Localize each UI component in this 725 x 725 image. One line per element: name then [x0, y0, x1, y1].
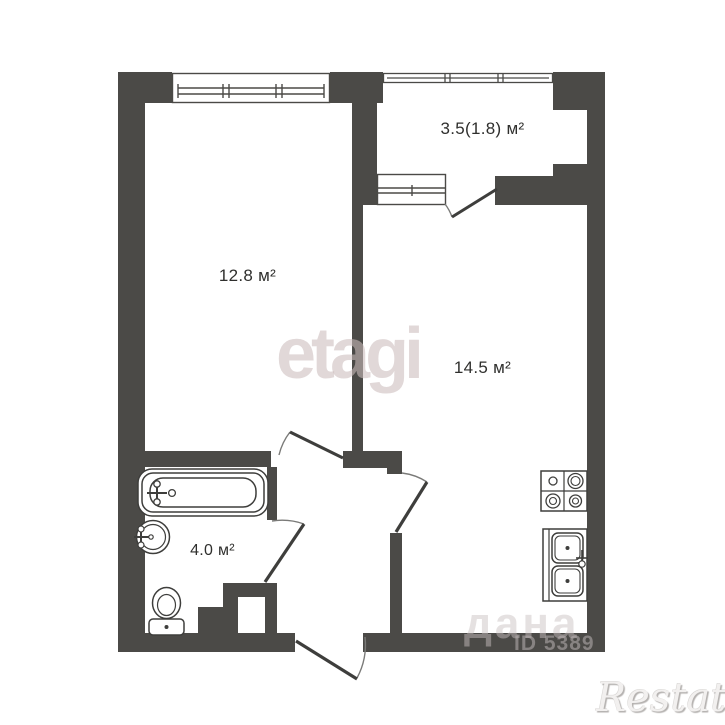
toilet-icon	[149, 588, 184, 636]
door-living	[279, 432, 343, 458]
watermark-etagi: etagi	[276, 318, 419, 390]
wall-stair-middle	[223, 597, 238, 638]
window-living-icon	[173, 74, 330, 103]
wall-balcony-step-upper	[553, 164, 587, 176]
wall-top-middle	[330, 72, 383, 103]
wall-top-left	[118, 72, 172, 103]
door-entrance	[296, 637, 365, 679]
floor-plan: 12.8 м² 3.5(1.8) м² 14.5 м² 4.0 м² etagi…	[0, 0, 725, 725]
restate-logo: Restate	[596, 678, 725, 718]
wall-hall-top-ext	[387, 451, 402, 474]
room-label-balcony: 3.5(1.8) м²	[415, 119, 550, 139]
wall-hall-kitchen	[390, 533, 402, 633]
wall-stair-right	[265, 597, 277, 638]
bathtub-icon	[138, 469, 268, 516]
door-bathroom	[265, 520, 304, 582]
wall-middle-upper	[352, 103, 377, 205]
room-label-living: 12.8 м²	[185, 266, 310, 286]
wall-left	[118, 72, 145, 652]
wall-right	[587, 110, 605, 652]
door-kitchen	[396, 473, 427, 532]
wall-balcony-step-lower	[495, 176, 587, 205]
kitchen-sink-icon	[543, 529, 588, 601]
room-label-kitchen: 14.5 м²	[425, 358, 540, 378]
door-balcony	[445, 189, 497, 217]
window-balcony-inner-icon	[378, 175, 446, 205]
window-balcony-glazing-icon	[384, 74, 553, 83]
watermark-bottom-id: ID 5389	[514, 633, 595, 654]
room-label-bathroom: 4.0 м²	[155, 542, 270, 560]
stove-icon	[541, 471, 587, 511]
wall-corner-top-right	[553, 72, 605, 110]
wall-bathroom-top	[145, 451, 271, 467]
wall-bathroom-right	[267, 467, 277, 520]
wall-bottom-left	[118, 633, 295, 652]
wall-stair-bar	[223, 583, 277, 597]
